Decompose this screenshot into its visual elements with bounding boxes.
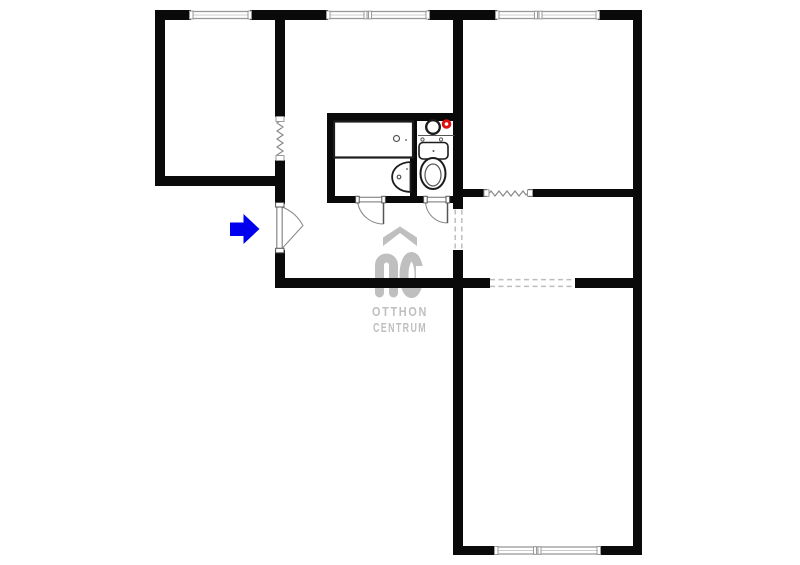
radiator-right	[484, 190, 533, 197]
entrance-door	[276, 203, 303, 253]
water-heater-icon	[426, 120, 440, 134]
bathroom-door	[356, 196, 386, 224]
logo-line1: OTTHON	[372, 304, 428, 319]
wall-hall-divider-b	[275, 160, 285, 204]
wall-bathblock-top	[327, 113, 463, 121]
wc-sink	[418, 136, 455, 160]
wall-rightroom-top-1	[455, 189, 487, 197]
wall-bathblock-bottom-2	[385, 196, 425, 203]
wall-bathblock-bottom-3	[448, 196, 463, 203]
window-top-middle	[327, 11, 430, 19]
window-top-right	[496, 11, 600, 19]
logo-line2: CENTRUM	[373, 320, 427, 335]
walls	[155, 10, 642, 555]
logo-roof-icon	[383, 227, 417, 247]
wall-rightroom-top-2	[528, 189, 642, 197]
dashed-opening-vertical	[455, 210, 462, 251]
wall-main-vertical-a	[453, 10, 463, 209]
entrance-arrow-icon	[230, 214, 260, 244]
wall-bathblock-bottom-1	[327, 196, 357, 203]
wall-top-2	[250, 10, 328, 20]
window-bottom	[495, 547, 601, 555]
floorplan-canvas: OTTHON CENTRUM	[0, 0, 800, 565]
wall-hall-divider-a	[275, 20, 285, 117]
wall-hall-bottom-1	[275, 278, 490, 288]
bathtub	[334, 122, 413, 158]
wall-leftroom-bottom	[155, 176, 285, 186]
gas-valve-icon	[442, 119, 452, 129]
wall-hall-bottom-2	[575, 278, 642, 288]
window-top-left	[190, 11, 252, 19]
washbasin	[392, 162, 410, 192]
dashed-opening-horizontal	[490, 280, 575, 287]
wall-main-vertical-b	[453, 250, 463, 555]
toilet	[421, 158, 446, 189]
wall-left	[155, 10, 165, 186]
radiator-left	[276, 117, 284, 161]
wc-door	[424, 196, 450, 223]
wall-bottom-2	[599, 546, 642, 555]
